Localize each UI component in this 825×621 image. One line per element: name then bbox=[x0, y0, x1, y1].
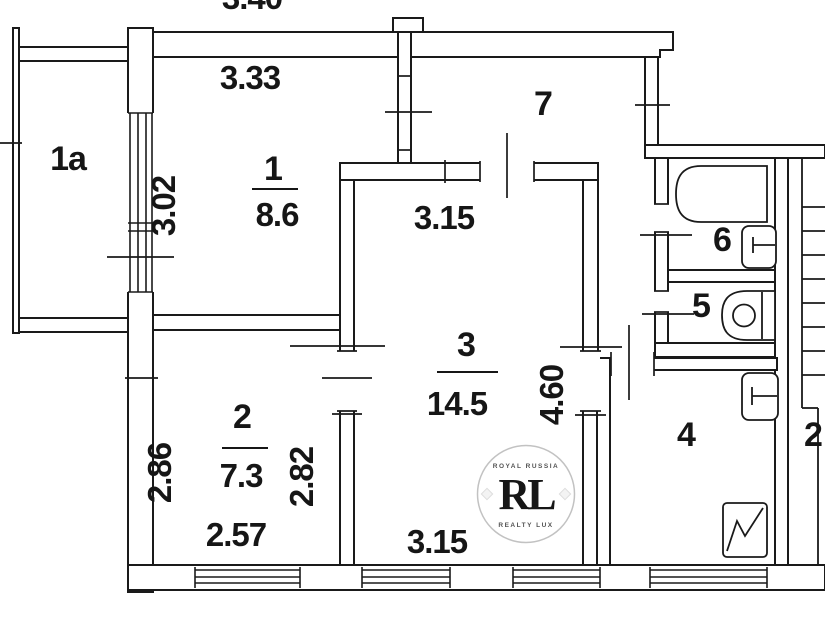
top-partial-dimension: 3.40 bbox=[222, 0, 282, 16]
adjacent-room-label: 2 bbox=[804, 416, 822, 454]
room1-width: 3.33 bbox=[220, 59, 281, 96]
watermark: ROYAL RUSSIA REALTY LUX RL bbox=[478, 446, 575, 543]
room2-label: 2 bbox=[233, 398, 251, 436]
balcony-top-rail bbox=[19, 47, 128, 61]
room2-area: 7.3 bbox=[220, 457, 264, 494]
room3-area: 14.5 bbox=[427, 385, 488, 422]
room4-label: 4 bbox=[677, 416, 696, 454]
kitchen-sink-icon bbox=[742, 373, 778, 420]
wall-room7-room3 bbox=[340, 163, 598, 180]
room1-label: 1 bbox=[264, 150, 282, 188]
room3-width-top: 3.15 bbox=[414, 199, 475, 236]
watermark-arc-top: ROYAL RUSSIA bbox=[493, 463, 559, 470]
room5-label: 5 bbox=[692, 287, 710, 325]
stove-icon bbox=[723, 503, 767, 557]
balcony-label: 1a bbox=[50, 140, 88, 178]
washbasin-icon bbox=[742, 226, 776, 268]
room3-width-bottom: 3.15 bbox=[407, 523, 468, 560]
window-room2 bbox=[195, 567, 300, 588]
floor-plan: 3.40 1a 3.33 3.02 1 8.6 7 3.15 3 14.5 4.… bbox=[0, 0, 825, 621]
room2-height-left: 2.86 bbox=[141, 442, 178, 503]
floor-plan-drawing: 3.40 1a 3.33 3.02 1 8.6 7 3.15 3 14.5 4.… bbox=[0, 0, 825, 621]
wall-bath-wc bbox=[668, 270, 775, 282]
room1-area: 8.6 bbox=[256, 196, 300, 233]
bathtub-icon bbox=[676, 166, 767, 222]
vent-stub bbox=[393, 18, 423, 32]
bath-top-wall bbox=[645, 145, 825, 158]
room3-label: 3 bbox=[457, 326, 475, 364]
entrance-wall bbox=[645, 57, 658, 145]
window-room4 bbox=[650, 567, 767, 588]
window-room3-left bbox=[362, 567, 450, 588]
window-room3-right bbox=[513, 567, 600, 588]
room1-height: 3.02 bbox=[145, 175, 182, 236]
room2-width-bottom: 2.57 bbox=[206, 516, 266, 553]
wall-room1-room7 bbox=[398, 32, 411, 163]
room7-label: 7 bbox=[534, 85, 552, 123]
bath-block-left-wall bbox=[655, 158, 668, 357]
room3-height-right: 4.60 bbox=[533, 365, 570, 425]
toilet-icon bbox=[722, 291, 775, 340]
balcony-bottom-rail bbox=[19, 318, 128, 332]
wall-room1-room2 bbox=[153, 315, 340, 330]
watermark-monogram: RL bbox=[498, 470, 555, 519]
balcony-left-rail bbox=[13, 28, 19, 333]
wc-bottom-wall bbox=[655, 343, 775, 357]
room6-label: 6 bbox=[713, 221, 731, 259]
watermark-arc-bottom: REALTY LUX bbox=[498, 522, 553, 529]
room2-height-right: 2.82 bbox=[283, 446, 320, 507]
